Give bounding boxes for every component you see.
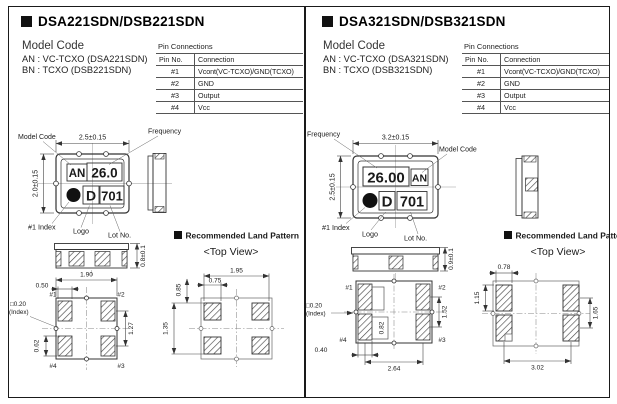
model-code-line: AN : VC-TCXO (DSA321SDN) (323, 54, 449, 65)
land-pattern-subheading: <Top View> (531, 246, 586, 258)
pad-label: #2 (438, 285, 446, 292)
panel-dsa221: DSA221SDN/DSB221SDN Model Code AN : VC-T… (9, 7, 304, 397)
dim-label: 1.90 (80, 272, 93, 279)
pin-col-header: Pin No. (462, 54, 501, 66)
dim-label: 0.8±0.1 (140, 245, 147, 267)
callout-index: #1 Index (322, 223, 350, 232)
pin-conn: GND (501, 78, 610, 90)
pad-label: #2 (117, 292, 125, 299)
top-view-drawing: 26.00 AN D 701 3.2±0.15 2.5±0.15 Frequen… (307, 132, 477, 243)
marking-lot-no: 701 (400, 195, 424, 211)
land-pattern-bullet-icon (504, 231, 512, 239)
dim-label: 2.0±0.15 (33, 170, 40, 197)
pin-no: #1 (462, 66, 501, 78)
front-view-drawing: 0.8±0.1 (55, 244, 148, 277)
land-pattern-bullet-icon (174, 231, 182, 239)
table-row: #2GND (156, 78, 303, 90)
land-pattern-drawing: Recommended Land Pattern <Top View> 1.95 (163, 231, 300, 368)
index-mark-dot (67, 188, 81, 202)
pad-label: #1 (345, 285, 353, 292)
panel-divider (304, 7, 306, 397)
index-note: □0.20 (10, 301, 27, 308)
marking-logo: D (382, 194, 393, 211)
dim-label: 2.5±0.15 (79, 135, 106, 142)
dim-label: 1.52 (442, 305, 449, 318)
front-view-drawing: 0.9±0.1 (352, 248, 456, 280)
model-code-line: AN : VC-TCXO (DSA221SDN) (22, 54, 148, 65)
dim-label: 3.02 (531, 365, 544, 372)
dim-label: 3.2±0.15 (382, 135, 409, 142)
marking-frequency: 26.00 (367, 170, 405, 187)
callout-logo: Logo (362, 230, 378, 239)
dim-label: 0.9±0.1 (448, 248, 455, 270)
conn-col-header: Connection (501, 54, 610, 66)
dim-label: 1.27 (128, 322, 135, 335)
pin-table-caption: Pin Connections (156, 42, 303, 51)
pin-conn: Vcc (501, 102, 610, 114)
table-row: #3Output (156, 90, 303, 102)
dim-label: 0.75 (209, 278, 222, 285)
marking-lot-no: 701 (101, 189, 123, 204)
pin-conn: Output (195, 90, 304, 102)
pin-no: #3 (462, 90, 501, 102)
pin-conn: Output (501, 90, 610, 102)
pin-table: Pin No. Connection #1Vcont(VC-TCXO)/GND(… (156, 53, 303, 114)
land-pattern-drawing: Recommended Land Pattern <Top View> 0.78 (474, 231, 617, 372)
marking-model-code: AN (69, 168, 86, 180)
pin-conn: Vcont(VC-TCXO)/GND(TCXO) (195, 66, 304, 78)
drawing-dsa221: AN 26.0 D 701 2.5±0.15 2.0±0.15 Model Co… (9, 119, 305, 395)
pin-no: #2 (156, 78, 195, 90)
land-pattern-heading: Recommended Land Pattern (516, 231, 617, 241)
dim-label: 0.82 (379, 321, 386, 334)
bottom-view-drawing: #1 #2 #4 #3 1.90 0.50 1.27 (9, 272, 135, 371)
dim-label: 1.95 (230, 268, 243, 275)
marking-model-code: AN (412, 173, 427, 185)
table-row: #4Vcc (156, 102, 303, 114)
callout-index: #1 Index (28, 223, 56, 232)
pin-conn: GND (195, 78, 304, 90)
table-row: #1Vcont(VC-TCXO)/GND(TCXO) (462, 66, 609, 78)
dim-label: 0.40 (315, 347, 328, 354)
pad-label: #3 (117, 363, 125, 370)
dim-label: 1.15 (474, 291, 481, 304)
index-note: □0.20 (306, 303, 323, 310)
section-bullet-icon (322, 16, 333, 27)
callout-lot-no: Lot No. (108, 231, 131, 240)
side-view-drawing (148, 154, 166, 213)
pin-connections: Pin Connections Pin No. Connection #1Vco… (462, 42, 609, 114)
dim-label: 1.65 (593, 306, 600, 319)
pin-no: #4 (462, 102, 501, 114)
conn-col-header: Connection (195, 54, 304, 66)
dim-label: 0.50 (36, 283, 49, 290)
marking-frequency: 26.0 (91, 166, 117, 181)
callout-frequency: Frequency (307, 132, 341, 139)
pin-no: #2 (462, 78, 501, 90)
pin-conn: Vcont(VC-TCXO)/GND(TCXO) (501, 66, 610, 78)
pad-label: #3 (438, 337, 446, 344)
model-code-block: Model Code AN : VC-TCXO (DSA321SDN) BN :… (323, 40, 449, 76)
table-row: #4Vcc (462, 102, 609, 114)
top-view-drawing: AN 26.0 D 701 2.5±0.15 2.0±0.15 Model Co… (18, 129, 182, 240)
dim-label: 2.5±0.15 (330, 173, 337, 200)
table-row: #2GND (462, 78, 609, 90)
datasheet-page: DSA221SDN/DSB221SDN Model Code AN : VC-T… (8, 6, 610, 398)
dim-label: 0.62 (34, 339, 41, 352)
page-title: DSA221SDN/DSB221SDN (38, 14, 205, 29)
pin-no: #4 (156, 102, 195, 114)
pin-connections: Pin Connections Pin No. Connection #1Vco… (156, 42, 303, 114)
pin-col-header: Pin No. (156, 54, 195, 66)
pad-label: #4 (49, 363, 57, 370)
callout-logo: Logo (73, 227, 89, 236)
index-note: (Index) (9, 309, 29, 316)
pin-no: #3 (156, 90, 195, 102)
section-bullet-icon (21, 16, 32, 27)
pin-conn: Vcc (195, 102, 304, 114)
index-mark-dot (363, 193, 378, 208)
land-pattern-heading: Recommended Land Pattern (186, 231, 300, 241)
model-code-line: BN : TCXO (DSB321SDN) (323, 65, 449, 76)
pin-table-caption: Pin Connections (462, 42, 609, 51)
index-note: (Index) (306, 311, 326, 318)
callout-model-code: Model Code (439, 147, 477, 154)
dim-label: 2.64 (388, 366, 401, 373)
dim-label: 0.85 (176, 283, 183, 296)
model-code-heading: Model Code (22, 40, 148, 52)
pad-label: #4 (339, 337, 347, 344)
pin-no: #1 (156, 66, 195, 78)
model-code-heading: Model Code (323, 40, 449, 52)
panel-header: DSA321SDN/DSB321SDN (322, 14, 506, 29)
page-title: DSA321SDN/DSB321SDN (339, 14, 506, 29)
bottom-view-drawing: 0.82 #1 #2 #4 #3 □0.20 (Index) 1.52 0.40 (306, 274, 449, 373)
model-code-line: BN : TCXO (DSB221SDN) (22, 65, 148, 76)
side-view-drawing (516, 156, 538, 218)
drawing-dsa321: 26.00 AN D 701 3.2±0.15 2.5±0.15 Frequen… (306, 119, 606, 395)
callout-frequency: Frequency (148, 129, 182, 136)
dim-label: 0.78 (498, 264, 511, 271)
model-code-block: Model Code AN : VC-TCXO (DSA221SDN) BN :… (22, 40, 148, 76)
callout-model-code: Model Code (18, 134, 56, 141)
dim-label: 1.35 (163, 322, 170, 335)
callout-lot-no: Lot No. (404, 234, 427, 243)
marking-logo: D (86, 188, 96, 204)
land-pattern-subheading: <Top View> (204, 246, 259, 258)
panel-dsa321: DSA321SDN/DSB321SDN Model Code AN : VC-T… (306, 7, 609, 397)
table-row: #1Vcont(VC-TCXO)/GND(TCXO) (156, 66, 303, 78)
pin-table: Pin No. Connection #1Vcont(VC-TCXO)/GND(… (462, 53, 609, 114)
table-row: #3Output (462, 90, 609, 102)
panel-header: DSA221SDN/DSB221SDN (21, 14, 205, 29)
